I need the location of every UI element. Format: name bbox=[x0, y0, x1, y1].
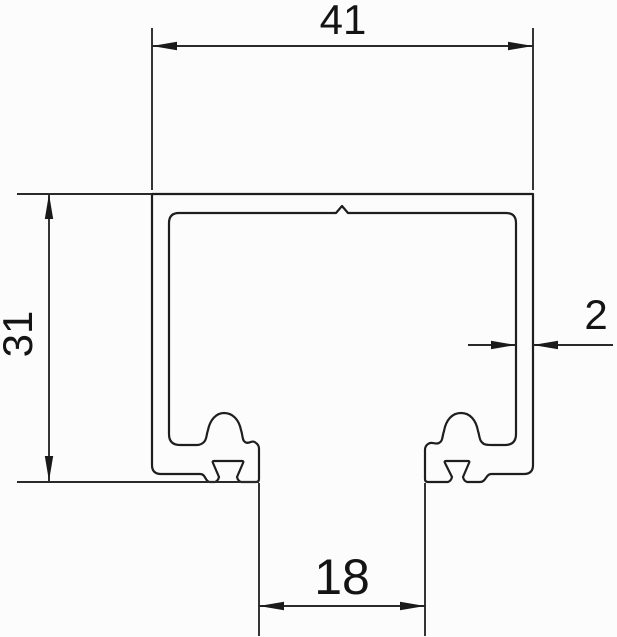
opening-dimension-label: 18 bbox=[314, 549, 370, 605]
height-dimension-label: 31 bbox=[0, 311, 41, 358]
height-arrowhead-bottom bbox=[45, 456, 53, 481]
opening-arrowhead-left bbox=[259, 602, 284, 610]
width-arrowhead-right bbox=[508, 42, 533, 50]
dimension-overall-height: 31 bbox=[0, 194, 259, 482]
thickness-arrowhead-right bbox=[533, 341, 558, 349]
thickness-dimension-label: 2 bbox=[584, 291, 607, 338]
profile-drawing-canvas: 41 31 2 18 bbox=[0, 0, 617, 637]
width-arrowhead-left bbox=[152, 42, 177, 50]
dimension-overall-width: 41 bbox=[152, 0, 533, 190]
opening-arrowhead-right bbox=[400, 602, 425, 610]
technical-drawing-page: 41 31 2 18 bbox=[0, 0, 617, 637]
dimension-wall-thickness: 2 bbox=[468, 291, 613, 349]
profile-outline bbox=[152, 194, 533, 482]
dimension-bottom-opening: 18 bbox=[259, 483, 425, 636]
thickness-arrowhead-left bbox=[491, 341, 516, 349]
width-dimension-label: 41 bbox=[320, 0, 367, 43]
height-arrowhead-top bbox=[45, 194, 53, 219]
